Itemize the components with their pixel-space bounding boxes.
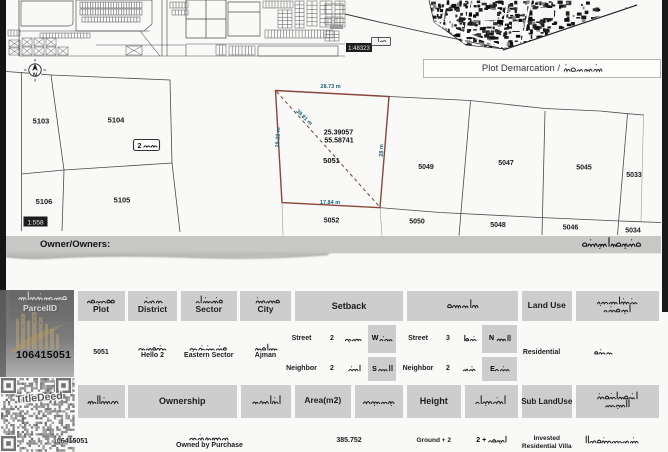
svg-text:5104: 5104 [108,116,126,125]
svg-text:5106: 5106 [36,197,53,206]
svg-text:28.22 m: 28.22 m [275,127,282,148]
svg-text:5103: 5103 [33,117,50,126]
svg-text:5045: 5045 [576,165,592,172]
svg-text:17.84 m: 17.84 m [320,200,340,206]
svg-text:5051: 5051 [323,156,340,165]
svg-text:5048: 5048 [490,222,506,229]
svg-text:1:558: 1:558 [27,220,44,227]
svg-text:25.39057: 25.39057 [324,130,353,137]
svg-text:28.73 m: 28.73 m [320,84,340,90]
svg-text:5050: 5050 [409,219,425,226]
svg-text:28 m: 28 m [379,144,385,157]
svg-text:5046: 5046 [563,225,579,232]
svg-text:39.81 m: 39.81 m [294,109,313,127]
svg-text:5052: 5052 [324,218,340,225]
svg-text:55.58741: 55.58741 [324,138,353,145]
svg-text:5033: 5033 [626,172,642,179]
svg-text:5049: 5049 [418,164,434,171]
svg-text:1:48323: 1:48323 [348,46,370,52]
svg-text:5047: 5047 [498,160,514,167]
svg-text:N: N [33,73,37,79]
svg-text:5105: 5105 [114,196,131,205]
svg-text:2: 2 [138,143,142,150]
